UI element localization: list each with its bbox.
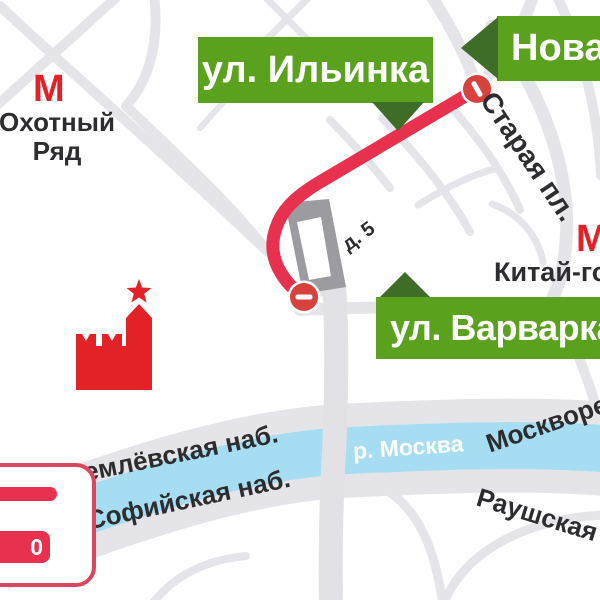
station-label-okhotny-ryad: Охотный Ряд: [0, 108, 127, 165]
pointer-down-icon: [372, 102, 424, 131]
date-badge: 0: [0, 531, 50, 563]
street-sign-novaya: Новая пл.: [497, 16, 600, 81]
moskvoretsky-bridge: [331, 286, 337, 600]
building-5-outline: [285, 199, 346, 294]
pointer-up-icon: [380, 272, 430, 297]
metro-icon: М: [33, 70, 65, 108]
kremlin-icon: [76, 279, 152, 390]
street-sign-ilyinka: ул. Ильинка: [198, 37, 433, 103]
station-label-line1: Охотный: [0, 108, 127, 137]
closed-route-sample-line: [0, 487, 57, 501]
map-canvas: ул. Ильинка Новая пл. ул. Варварка М Охо…: [0, 0, 600, 600]
street-sign-ilyinka-text: ул. Ильинка: [202, 49, 429, 92]
street-sign-novaya-text: Новая пл.: [511, 27, 600, 70]
station-label-kitay-gorod: Китай-город: [494, 258, 600, 288]
metro-icon: М: [576, 220, 600, 258]
street-sign-varvarka-text: ул. Варварка: [390, 307, 600, 349]
street-sign-varvarka: ул. Варварка: [376, 297, 600, 359]
no-entry-icon: [288, 281, 321, 314]
station-label-line2: Ряд: [0, 137, 127, 166]
pointer-left-icon: [461, 17, 498, 79]
star-icon: [127, 279, 152, 303]
legend-card: 0: [0, 463, 96, 587]
